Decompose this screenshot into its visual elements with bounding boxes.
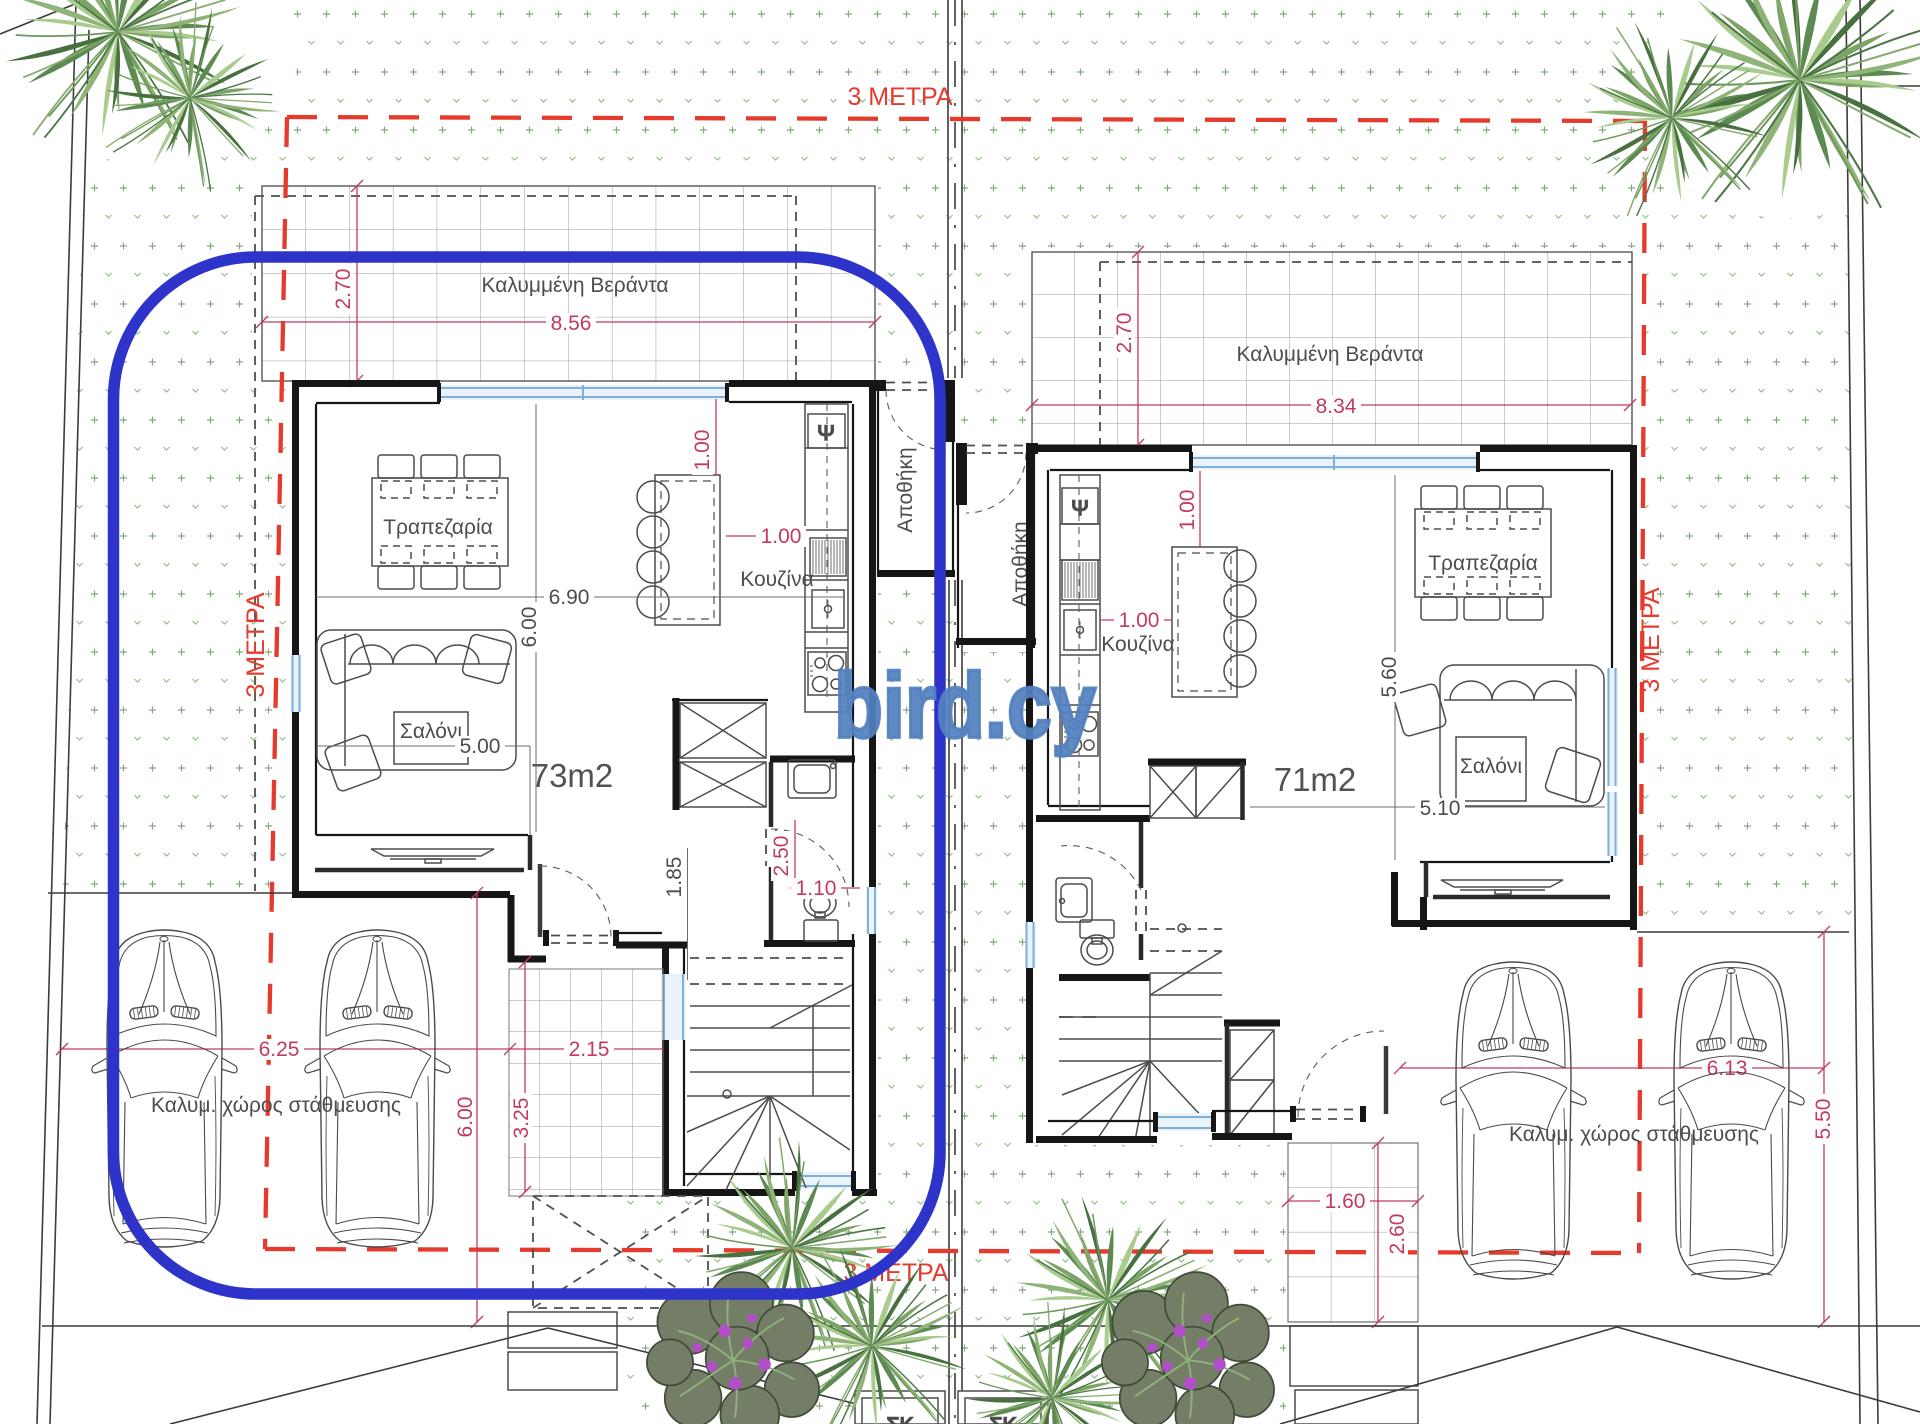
svg-text:5.00: 5.00	[460, 735, 501, 758]
svg-text:1.60: 1.60	[1325, 1190, 1366, 1213]
svg-text:6.25: 6.25	[259, 1038, 300, 1061]
svg-text:3.25: 3.25	[510, 1098, 533, 1139]
svg-text:1.00: 1.00	[1176, 490, 1199, 531]
svg-text:Κουζίνα: Κουζίνα	[1101, 633, 1174, 656]
svg-text:ΣΚ: ΣΚ	[887, 1414, 914, 1424]
svg-text:5.50: 5.50	[1812, 1099, 1835, 1140]
svg-text:3 ΜΕΤΡΑ: 3 ΜΕΤΡΑ	[1637, 587, 1665, 692]
svg-text:Καλυμμένη Βεράντα: Καλυμμένη Βεράντα	[481, 274, 668, 297]
svg-text:2.15: 2.15	[569, 1038, 610, 1061]
svg-text:6.13: 6.13	[1707, 1057, 1748, 1080]
svg-text:6.00: 6.00	[454, 1097, 477, 1138]
svg-text:2.70: 2.70	[332, 269, 355, 310]
svg-text:bird.cy: bird.cy	[834, 655, 1096, 757]
svg-text:1.00: 1.00	[761, 525, 802, 548]
svg-text:1.00: 1.00	[691, 430, 714, 471]
svg-text:Καλυμ. χώρος στάθμευσης: Καλυμ. χώρος στάθμευσης	[1509, 1123, 1759, 1146]
svg-text:Καλυμ. χώρος στάθμευσης: Καλυμ. χώρος στάθμευσης	[151, 1094, 401, 1117]
svg-text:2.50: 2.50	[770, 836, 793, 877]
svg-text:Σαλόνι: Σαλόνι	[400, 720, 462, 743]
svg-text:Σαλόνι: Σαλόνι	[1460, 755, 1522, 778]
svg-text:6.00: 6.00	[518, 607, 541, 648]
svg-text:5.10: 5.10	[1420, 797, 1461, 820]
svg-text:Καλυμμένη Βεράντα: Καλυμμένη Βεράντα	[1236, 343, 1423, 366]
svg-text:1.10: 1.10	[796, 877, 837, 900]
svg-text:3 ΜΕΤΡΑ: 3 ΜΕΤΡΑ	[847, 83, 952, 111]
svg-text:Ψ: Ψ	[1071, 497, 1089, 520]
svg-text:6.90: 6.90	[549, 586, 590, 609]
svg-text:1.85: 1.85	[663, 857, 686, 898]
svg-text:2.70: 2.70	[1113, 313, 1136, 354]
svg-text:Ψ: Ψ	[817, 422, 835, 445]
svg-text:1.00: 1.00	[1119, 609, 1160, 632]
svg-text:73m2: 73m2	[531, 757, 614, 794]
svg-text:2.60: 2.60	[1386, 1214, 1409, 1255]
svg-text:Κουζίνα: Κουζίνα	[740, 568, 813, 591]
svg-text:8.56: 8.56	[551, 312, 592, 335]
svg-text:Τραπεζαρία: Τραπεζαρία	[383, 516, 493, 539]
svg-text:Τραπεζαρία: Τραπεζαρία	[1428, 552, 1538, 575]
svg-text:5.60: 5.60	[1378, 657, 1401, 698]
svg-text:71m2: 71m2	[1274, 761, 1357, 798]
svg-text:8.34: 8.34	[1316, 395, 1357, 418]
svg-text:Αποθήκη: Αποθήκη	[894, 447, 917, 532]
svg-text:3 ΜΕΤΡΑ: 3 ΜΕΤΡΑ	[242, 592, 270, 697]
